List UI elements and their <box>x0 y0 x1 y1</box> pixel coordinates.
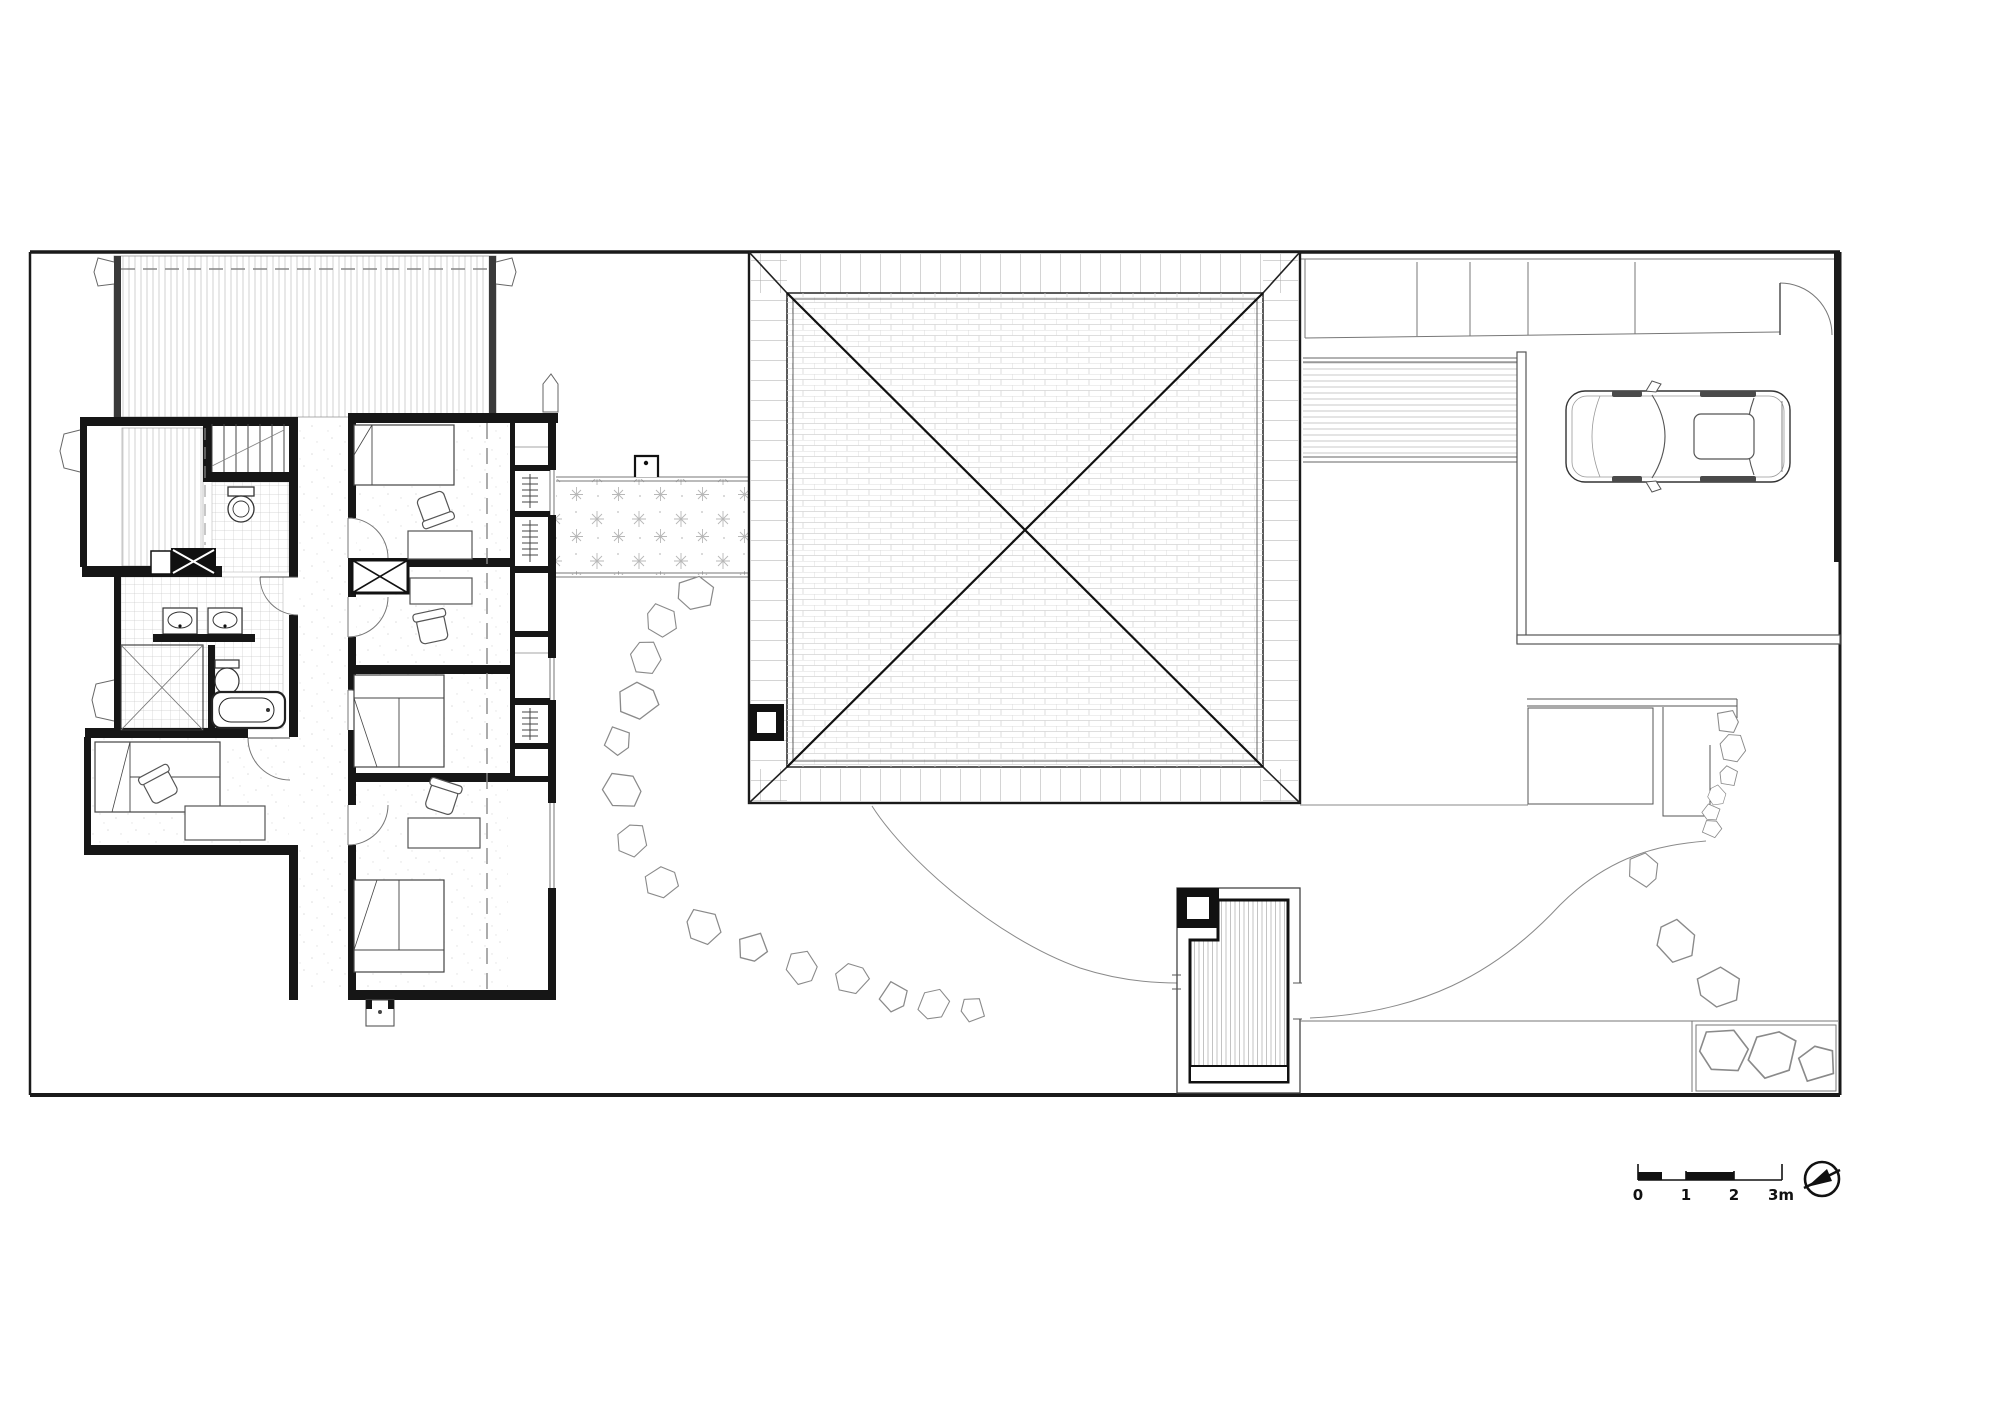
stepping-stone <box>1693 961 1748 1014</box>
scale-label-3m: 3m <box>1768 1186 1794 1204</box>
bathtub <box>212 692 285 728</box>
north-arrow-icon <box>1804 1162 1840 1196</box>
hall-wall <box>289 615 298 737</box>
stepping-stone <box>611 675 663 726</box>
yard-room <box>1528 708 1653 804</box>
court-wall-vertical <box>1517 352 1526 643</box>
eaves-band-right <box>1263 254 1298 801</box>
hall-wall <box>289 417 298 577</box>
rear-yard <box>1527 699 1737 816</box>
wall <box>348 413 558 423</box>
stepping-stone <box>737 933 769 964</box>
fence-line <box>1305 332 1780 338</box>
wall <box>82 417 293 426</box>
roof-deck <box>94 256 558 417</box>
desk-sw <box>185 806 265 840</box>
bath-column <box>1177 888 1219 928</box>
deck-floor <box>114 256 496 417</box>
pavilion-roof <box>749 252 1300 803</box>
bay-window-west-1 <box>60 430 80 472</box>
garden-walkway <box>556 456 749 577</box>
downpipe-bracket-east <box>496 258 516 286</box>
scale-label-0: 0 <box>1633 1186 1643 1204</box>
wardrobe-strip <box>510 423 550 782</box>
stair-wall <box>203 472 292 482</box>
street-band <box>1305 259 1832 338</box>
pavilion-column <box>749 704 784 741</box>
stepping-stone <box>678 576 713 609</box>
porch-floor <box>122 428 203 566</box>
floor-plan-canvas: 0 1 2 3m <box>0 0 2000 1414</box>
stepping-stone <box>1720 735 1746 762</box>
bath-deck-step <box>1190 1066 1288 1082</box>
stepping-stone <box>684 909 724 947</box>
downpipe-bracket-west <box>94 258 114 286</box>
stepping-stone <box>1717 764 1740 787</box>
stepping-stone <box>782 947 821 987</box>
water-tank <box>543 374 558 412</box>
wall <box>289 845 298 1000</box>
stepping-stone <box>598 768 644 813</box>
entry-stub <box>366 1000 394 1026</box>
eaves-band-top <box>751 254 1298 293</box>
wall <box>114 577 121 730</box>
duct-shaft-east <box>352 560 408 593</box>
bath-house <box>1172 888 1302 1093</box>
stepping-stone <box>1650 915 1702 968</box>
wing-east-wall <box>548 423 556 995</box>
court-wall-horizontal <box>1517 635 1840 644</box>
stepping-stone <box>876 979 912 1016</box>
stepping-stone <box>1718 711 1739 733</box>
stepping-stone <box>1700 817 1723 840</box>
car <box>1566 381 1790 492</box>
stepping-stone <box>959 996 985 1022</box>
stepping-stone <box>642 602 682 640</box>
toilet-1 <box>228 487 254 522</box>
deck-wall-west <box>114 256 121 417</box>
car-sunroof <box>1694 414 1754 459</box>
stepping-stone <box>913 983 954 1025</box>
stepping-stone <box>613 822 649 860</box>
wall <box>80 417 87 567</box>
desk-e4 <box>408 818 480 848</box>
stepping-stone <box>630 641 663 675</box>
scale-label-2: 2 <box>1729 1186 1739 1204</box>
planting-bed <box>556 479 749 575</box>
fence-posts <box>1305 259 1635 338</box>
deck-wall-east <box>489 256 496 417</box>
vanity-counter <box>153 634 255 642</box>
toilet-2 <box>215 660 239 694</box>
duct-shaft-west <box>151 548 216 575</box>
scale-bar: 0 1 2 3m <box>1633 1164 1794 1204</box>
gate-swing-arc <box>1780 283 1832 335</box>
hallway-floor <box>298 423 348 990</box>
scale-label-1: 1 <box>1681 1186 1691 1204</box>
stepping-stone <box>601 724 635 758</box>
bed-e4 <box>354 880 444 972</box>
bottom-band <box>1300 1021 1838 1092</box>
house-west-wing <box>60 413 558 1000</box>
bay-window-west-2 <box>92 680 114 721</box>
stepping-stone <box>829 957 872 1000</box>
wall <box>348 990 556 1000</box>
floor-plan-page: 0 1 2 3m <box>0 0 2000 1414</box>
wall <box>84 737 91 853</box>
boundary-east-wall-thick <box>1834 252 1841 562</box>
yard-enclosure <box>1663 707 1710 816</box>
carport-deck <box>1303 358 1517 462</box>
desk-e2 <box>410 578 472 604</box>
path-to-bath-house <box>872 806 1177 983</box>
stepping-stone <box>1622 848 1664 889</box>
stepping-stone <box>641 863 681 902</box>
stepping-stone <box>1700 802 1722 823</box>
staircase <box>212 424 284 472</box>
gate <box>635 456 658 477</box>
entry-court <box>1300 259 1840 1092</box>
bedroom-e3 <box>354 675 444 767</box>
wall <box>84 845 293 855</box>
eaves-band-bottom <box>751 769 1298 801</box>
